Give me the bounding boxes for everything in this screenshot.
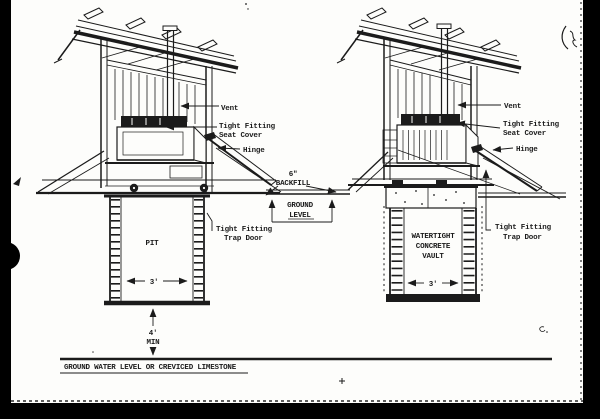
scan-border-bottom	[0, 403, 600, 419]
backfill-label-line1: 6"	[289, 171, 298, 179]
seat-cover-label-right-line1: Tight Fitting	[503, 121, 560, 129]
speck	[245, 3, 247, 5]
min-depth-label-line1: 4'	[149, 330, 158, 338]
hinge-label-right: Hinge	[516, 146, 538, 154]
vault-label-line3: VAULT	[422, 253, 444, 261]
scan-border-right	[583, 0, 600, 419]
seat-cover-label-left-line2: Seat Cover	[219, 132, 262, 140]
speck	[546, 331, 548, 333]
trap-door-label-left-line2: Trap Door	[224, 235, 263, 243]
ground-water-label: GROUND WATER LEVEL OR CREVICED LIMESTONE	[64, 364, 237, 372]
scanned-diagram-page: GROUND WATER LEVEL OR CREVICED LIMESTONE…	[0, 0, 600, 419]
left-seat-bench	[117, 116, 206, 163]
seat-cover-label-left-line1: Tight Fitting	[219, 123, 276, 131]
left-roof	[54, 8, 238, 73]
right-seat-bench	[383, 114, 478, 166]
seat-cover-label-right-line2: Seat Cover	[503, 130, 546, 138]
pit-width-dimension: 3'	[150, 279, 159, 287]
ground-water-line: GROUND WATER LEVEL OR CREVICED LIMESTONE	[60, 359, 552, 373]
vault-label-line1: WATERTIGHT	[411, 233, 455, 241]
speck	[247, 8, 248, 9]
right-roof	[337, 8, 521, 73]
speck	[92, 351, 94, 353]
trap-door-label-right-line2: Trap Door	[503, 234, 542, 242]
depth-dimension: 4' MIN	[147, 309, 160, 355]
left-trap-door-chute	[204, 132, 281, 192]
min-depth-label-line2: MIN	[147, 339, 160, 347]
right-privy-structure	[337, 8, 560, 302]
vault-width-dimension: 3'	[429, 281, 438, 289]
trap-door-label-left-line1: Tight Fitting	[216, 226, 273, 234]
ground-level-label-line1: GROUND	[287, 202, 314, 210]
pen-squiggle	[570, 31, 577, 47]
backfill-label-line2: BACKFILL	[276, 180, 311, 188]
trap-door-label-right-line1: Tight Fitting	[495, 224, 552, 232]
vent-label-left: Vent	[221, 105, 238, 113]
small-mark	[540, 327, 545, 332]
pit-label: PIT	[146, 240, 160, 248]
pen-mark	[562, 26, 568, 49]
scan-border-left	[0, 0, 11, 419]
privy-cross-section-figure: GROUND WATER LEVEL OR CREVICED LIMESTONE…	[0, 0, 600, 419]
vault-label-line2: CONCRETE	[416, 243, 451, 251]
left-berm	[38, 151, 109, 194]
scan-notch	[0, 242, 20, 270]
vent-label-right: Vent	[504, 103, 521, 111]
left-privy-structure	[36, 8, 281, 303]
left-platform	[36, 163, 280, 193]
center-annotations: 6" BACKFILL GROUND LEVEL	[266, 171, 336, 222]
hinge-label-left: Hinge	[243, 147, 265, 155]
